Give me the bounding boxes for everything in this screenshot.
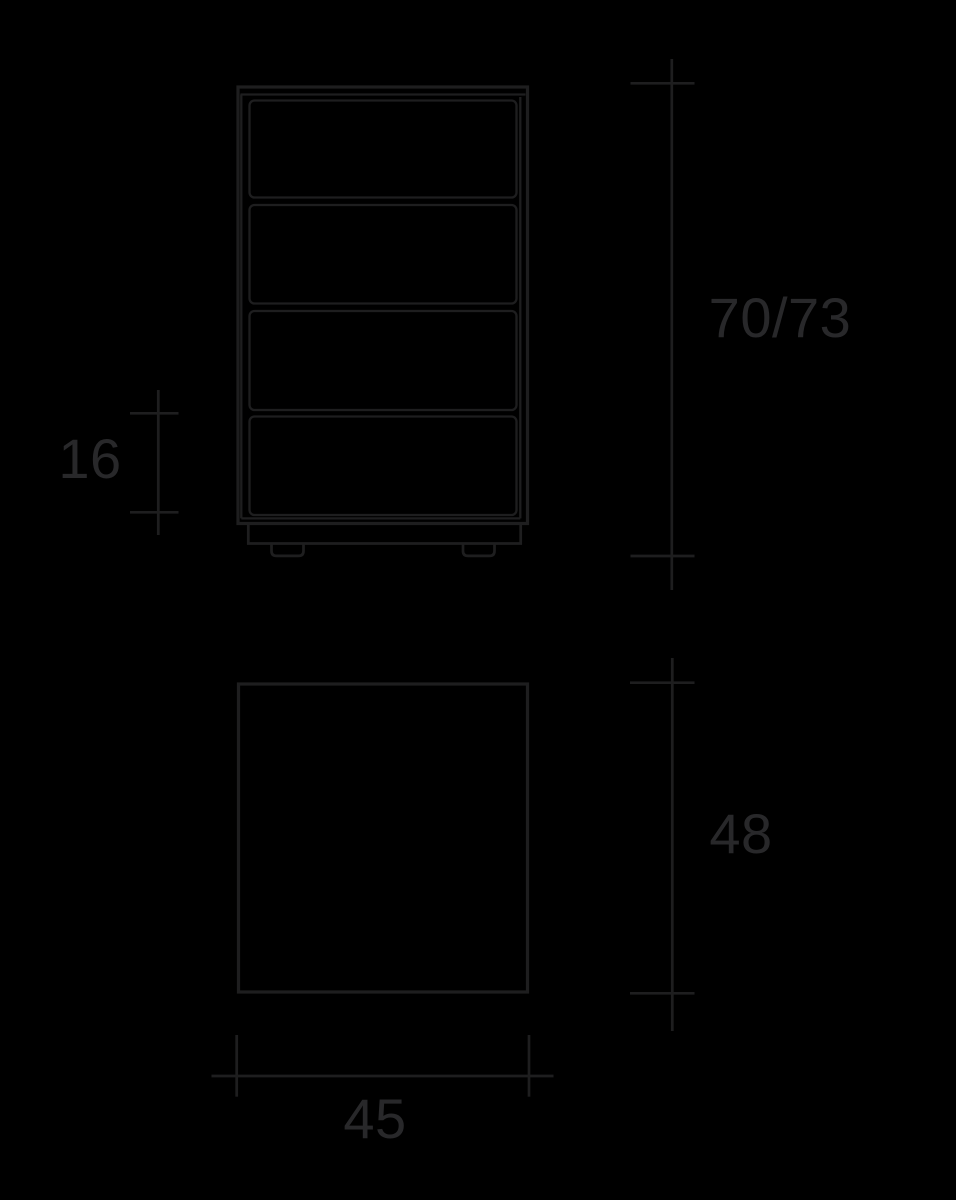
drawer-front-4 xyxy=(250,417,517,516)
plan-outline xyxy=(239,684,528,992)
dimension-diagram-canvas: 70/73 16 48 45 xyxy=(0,0,956,1200)
drawer-front-1 xyxy=(250,101,517,198)
drawer-height-dimension xyxy=(130,390,179,535)
plinth-base xyxy=(248,525,520,544)
cabinet-outer-outline xyxy=(238,87,528,524)
depth-dimension xyxy=(630,658,695,1031)
drawer-front-3 xyxy=(250,311,517,410)
height-dimension-value: 70/73 xyxy=(709,290,852,346)
plan-view xyxy=(239,684,528,992)
furniture-line-drawing xyxy=(0,0,956,1200)
depth-dimension-value: 48 xyxy=(709,806,772,862)
front-view xyxy=(238,87,528,556)
right-foot xyxy=(463,544,495,556)
height-dimension xyxy=(631,59,695,590)
left-foot xyxy=(272,544,304,556)
drawer-front-2 xyxy=(250,205,517,304)
width-dimension-value: 45 xyxy=(343,1091,406,1147)
drawer-height-dimension-value: 16 xyxy=(58,431,121,487)
